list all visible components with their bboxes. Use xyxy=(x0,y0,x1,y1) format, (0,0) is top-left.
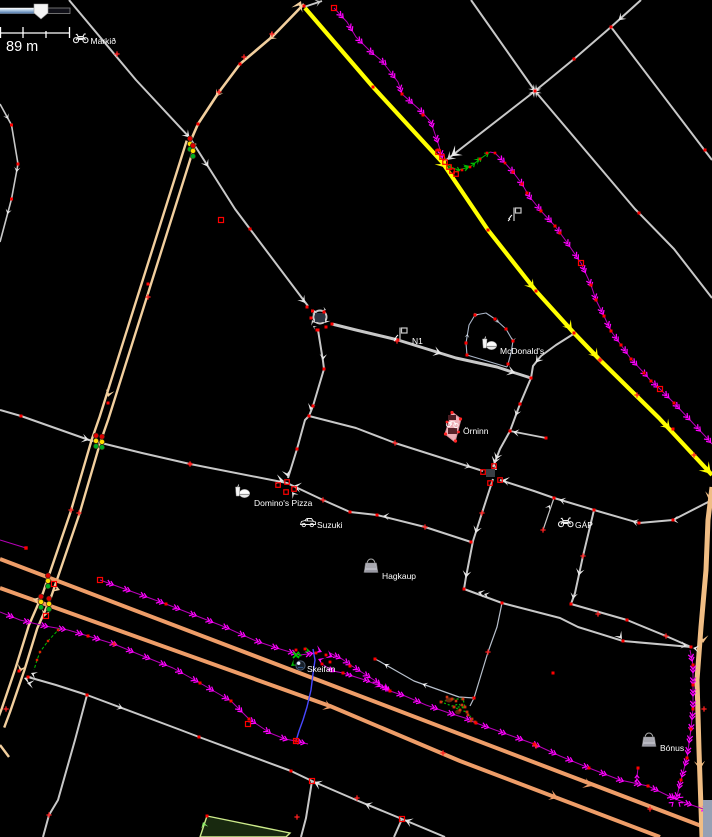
svg-text:Örninn: Örninn xyxy=(463,426,489,436)
svg-text:89 m: 89 m xyxy=(6,39,38,55)
svg-text:McDonald's: McDonald's xyxy=(500,346,544,356)
svg-text:Domino's Pizza: Domino's Pizza xyxy=(254,498,313,508)
svg-text:N1: N1 xyxy=(412,336,423,346)
svg-text:Skeifan: Skeifan xyxy=(307,664,336,674)
svg-text:Bónus: Bónus xyxy=(660,743,684,753)
svg-text:Suzuki: Suzuki xyxy=(317,520,343,530)
svg-text:GÁP: GÁP xyxy=(575,520,593,530)
svg-text:Markið: Markið xyxy=(91,36,117,46)
svg-text:Hagkaup: Hagkaup xyxy=(382,571,416,581)
